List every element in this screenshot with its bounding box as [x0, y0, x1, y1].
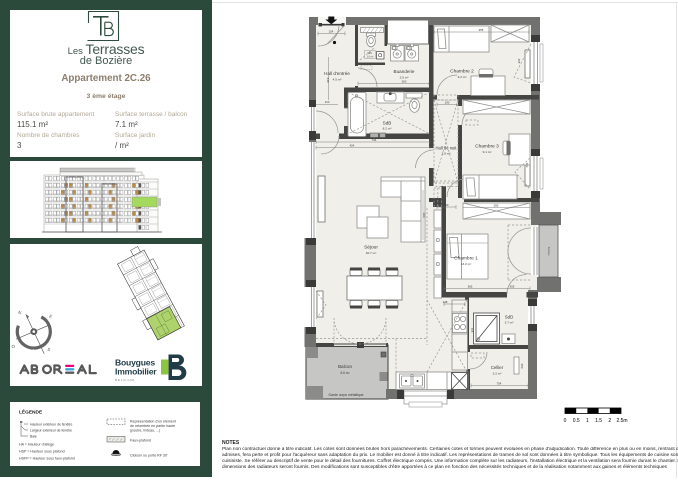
- svg-text:2.8 m²: 2.8 m²: [442, 152, 451, 156]
- svg-text:240: 240: [326, 78, 330, 83]
- svg-text:295: 295: [494, 204, 499, 208]
- svg-text:265: 265: [517, 59, 521, 64]
- svg-text:3.2 m²: 3.2 m²: [493, 372, 502, 376]
- svg-text:424: 424: [350, 144, 355, 148]
- svg-text:0.5: 0.5: [573, 418, 580, 424]
- svg-text:4.5 m²: 4.5 m²: [333, 78, 342, 82]
- svg-text:0: 0: [564, 418, 567, 424]
- svg-text:Buanderie: Buanderie: [394, 69, 415, 74]
- svg-text:754: 754: [497, 382, 502, 386]
- svg-text:9.1 m²: 9.1 m²: [483, 150, 492, 154]
- svg-text:SdB: SdB: [383, 121, 392, 126]
- svg-text:950: 950: [520, 364, 524, 369]
- svg-text:305: 305: [510, 285, 515, 289]
- svg-text:154: 154: [329, 29, 334, 33]
- svg-text:1.0 m²: 1.0 m²: [367, 55, 374, 58]
- svg-text:Hall de nuit: Hall de nuit: [436, 146, 458, 151]
- svg-text:148: 148: [443, 300, 448, 304]
- svg-text:13.2 m²: 13.2 m²: [461, 262, 472, 266]
- svg-text:Chambre 3: Chambre 3: [475, 144, 499, 150]
- svg-text:9.2 m²: 9.2 m²: [458, 75, 467, 79]
- svg-text:Séjour: Séjour: [364, 245, 378, 251]
- svg-text:WC: WC: [368, 51, 373, 55]
- svg-text:6.6 m²: 6.6 m²: [340, 371, 349, 375]
- svg-text:2.5m: 2.5m: [616, 418, 627, 424]
- svg-text:1.5: 1.5: [595, 418, 602, 424]
- svg-text:365: 365: [468, 285, 473, 289]
- svg-text:SdD: SdD: [505, 315, 514, 320]
- svg-text:1: 1: [586, 418, 589, 424]
- svg-text:Garde corps métallique: Garde corps métallique: [328, 393, 363, 397]
- svg-text:40.7 m²: 40.7 m²: [366, 251, 377, 255]
- svg-text:Terrasse: Terrasse: [547, 246, 550, 256]
- svg-text:2: 2: [608, 418, 611, 424]
- svg-text:110: 110: [325, 100, 330, 104]
- svg-text:100: 100: [444, 203, 449, 207]
- svg-text:744: 744: [372, 138, 377, 142]
- svg-text:363: 363: [525, 163, 529, 168]
- svg-text:355: 355: [479, 28, 484, 32]
- svg-text:715: 715: [470, 328, 474, 333]
- svg-text:8.2 m²: 8.2 m²: [383, 127, 392, 131]
- svg-text:Balcon: Balcon: [338, 364, 352, 369]
- svg-text:Cellier: Cellier: [491, 365, 504, 370]
- svg-text:Chambre 2: Chambre 2: [450, 69, 474, 75]
- svg-text:3.7 m²: 3.7 m²: [505, 321, 514, 325]
- svg-text:Hall d'entrée: Hall d'entrée: [324, 71, 350, 76]
- svg-text:Chambre 1: Chambre 1: [454, 256, 478, 262]
- svg-text:260: 260: [402, 80, 407, 84]
- svg-text:300: 300: [422, 213, 426, 218]
- svg-text:100: 100: [445, 101, 450, 105]
